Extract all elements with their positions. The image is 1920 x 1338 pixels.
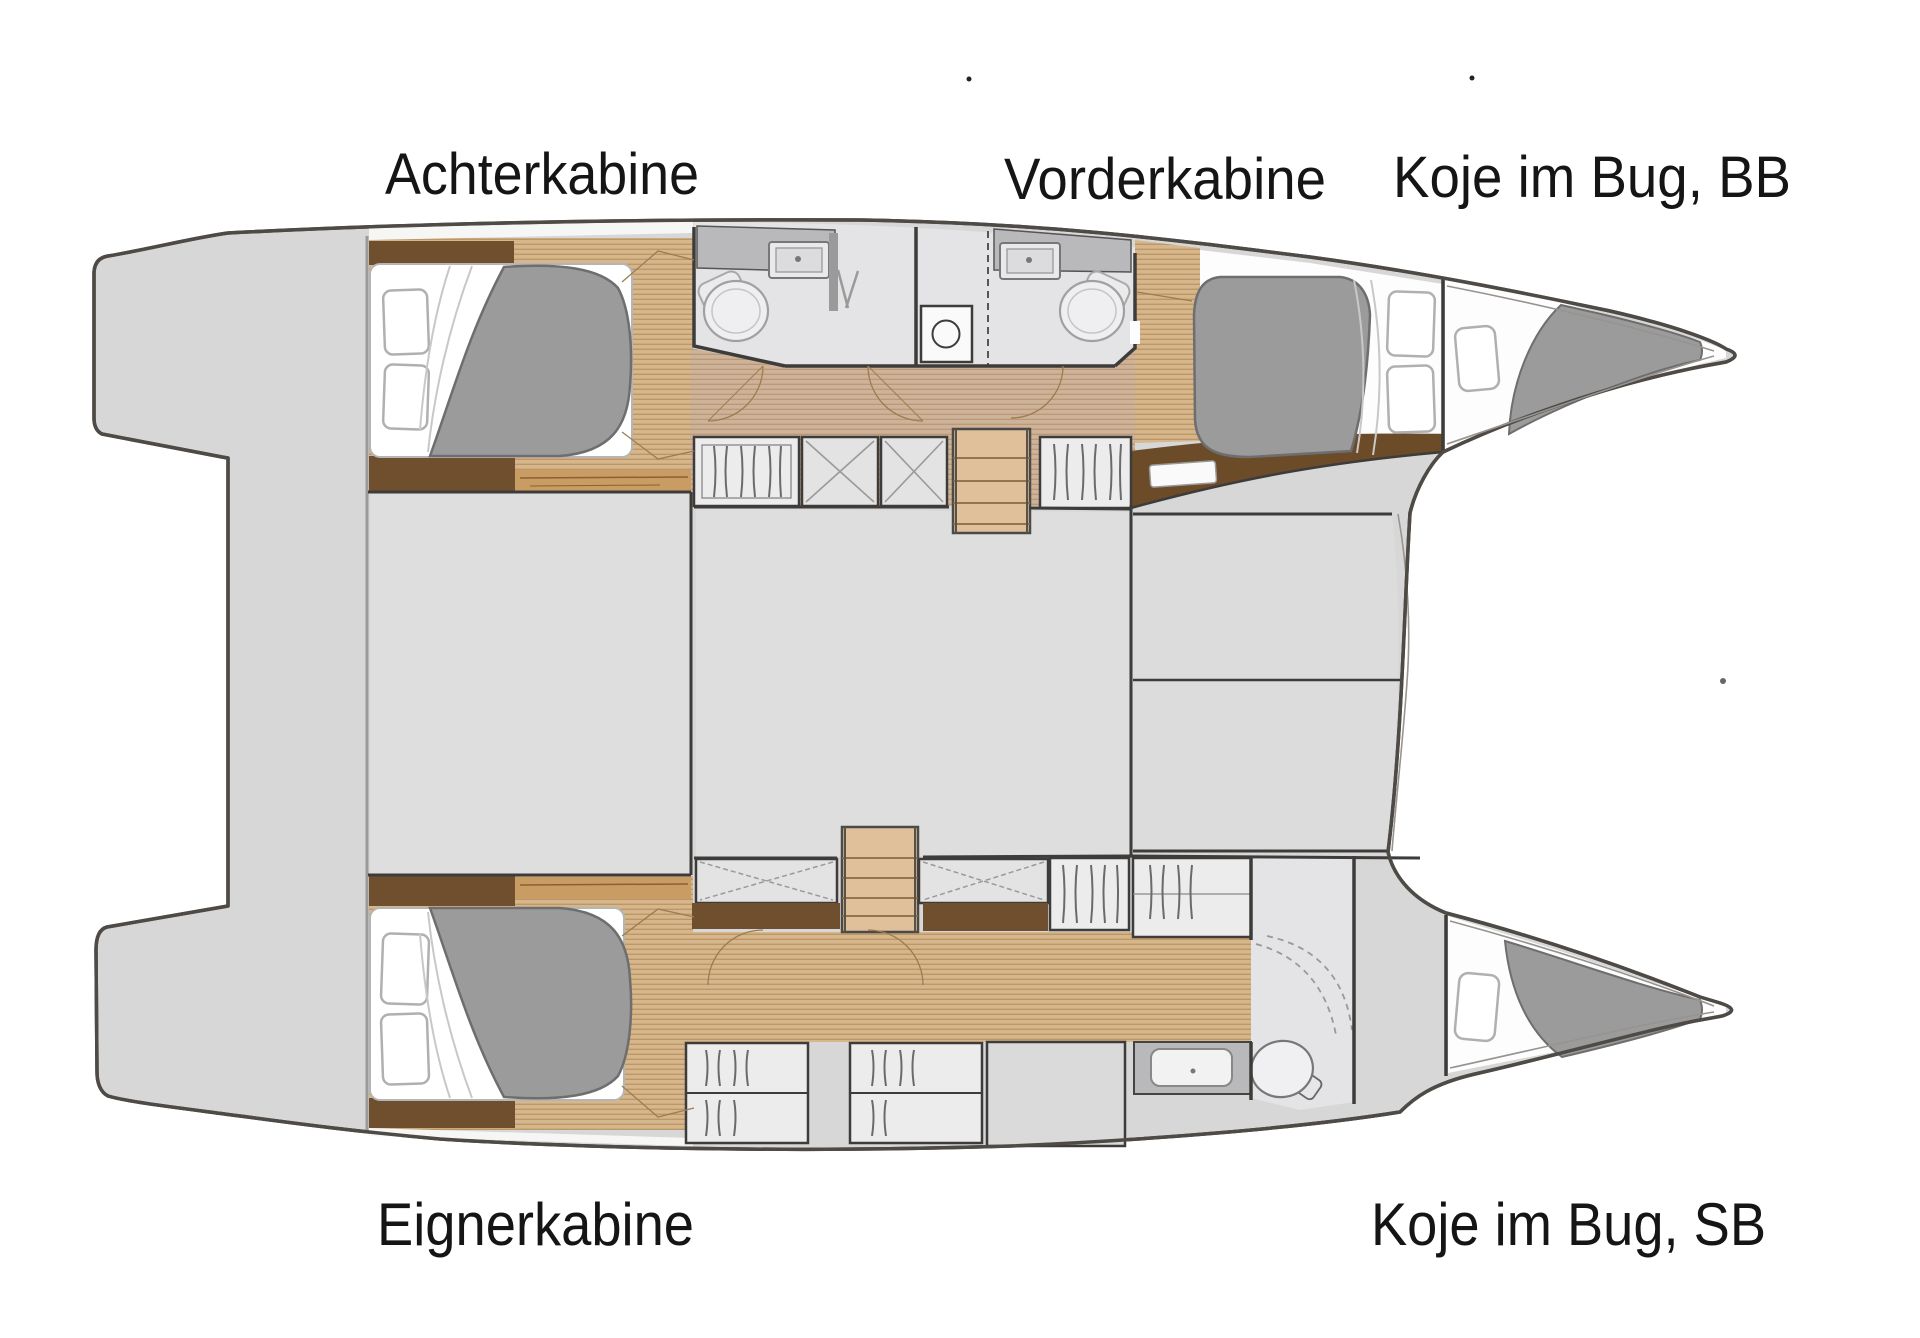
svg-text:Vorderkabine: Vorderkabine: [1004, 147, 1326, 212]
svg-text:Eignerkabine: Eignerkabine: [377, 1191, 694, 1258]
svg-text:Koje im Bug, BB: Koje im Bug, BB: [1393, 145, 1791, 210]
svg-text:Achterkabine: Achterkabine: [385, 142, 699, 207]
svg-text:Koje im Bug, SB: Koje im Bug, SB: [1371, 1191, 1766, 1258]
